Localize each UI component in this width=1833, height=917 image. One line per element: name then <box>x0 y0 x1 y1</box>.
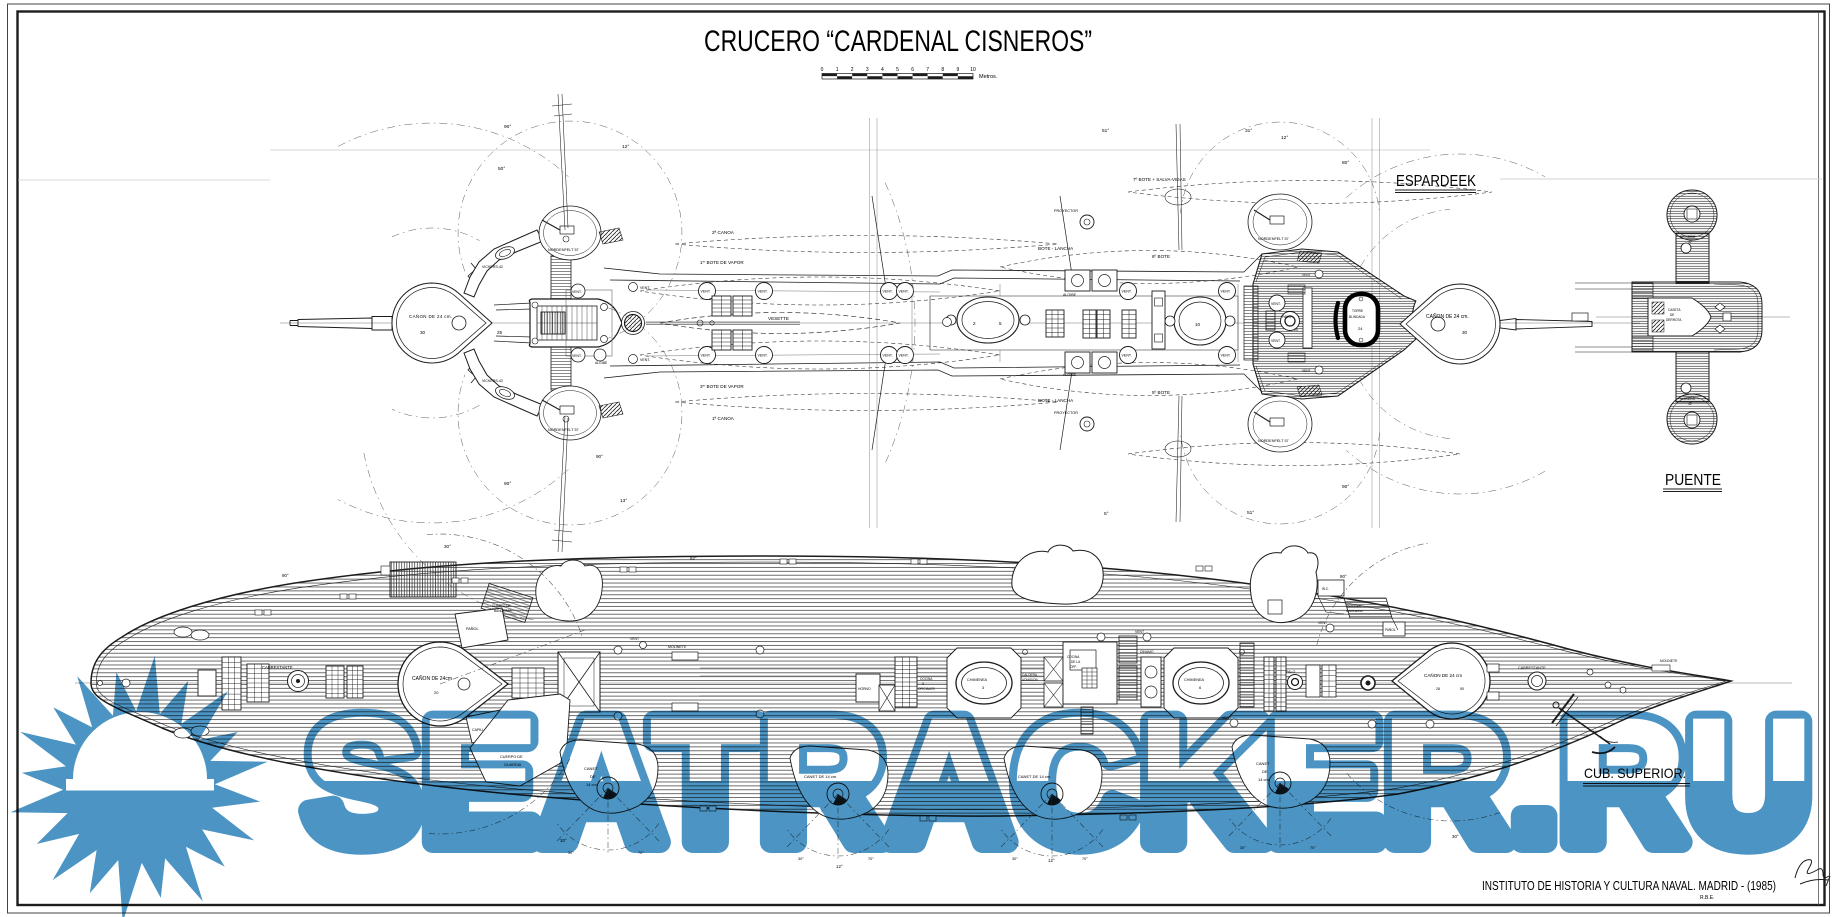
svg-text:90°: 90° <box>504 481 511 487</box>
svg-text:VICKERS-42: VICKERS-42 <box>482 379 503 383</box>
svg-text:VENT: VENT <box>1135 630 1144 634</box>
svg-text:DERROTA: DERROTA <box>1666 318 1682 322</box>
svg-text:10: 10 <box>1195 322 1201 327</box>
svg-text:20: 20 <box>1294 328 1298 332</box>
svg-text:90°: 90° <box>596 454 603 459</box>
svg-text:3: 3 <box>866 67 869 73</box>
svg-text:6º BOTE: 6º BOTE <box>1152 254 1170 259</box>
svg-text:NORDENFELT 57: NORDENFELT 57 <box>548 248 579 252</box>
svg-text:VENT: VENT <box>1302 273 1311 277</box>
svg-text:51°: 51° <box>1247 510 1254 516</box>
svg-text:7: 7 <box>926 67 929 73</box>
svg-text:VENT.: VENT. <box>1122 354 1132 358</box>
svg-text:12°: 12° <box>622 144 629 150</box>
svg-text:9: 9 <box>957 67 960 73</box>
svg-text:OFF.: OFF. <box>1070 665 1077 669</box>
svg-text:CUARTO DE: CUARTO DE <box>492 604 511 608</box>
svg-text:VENT.: VENT. <box>758 354 768 358</box>
svg-text:1ª CANOA: 1ª CANOA <box>712 416 735 421</box>
svg-text:90°: 90° <box>1342 484 1349 490</box>
svg-text:PROYECTOR: PROYECTOR <box>1054 209 1078 213</box>
svg-text:92°: 92° <box>690 556 697 561</box>
svg-text:VENT: VENT <box>630 637 639 641</box>
svg-text:MARINERIA: MARINERIA <box>1346 609 1363 613</box>
svg-text:13°: 13° <box>620 498 627 504</box>
svg-text:25: 25 <box>497 330 503 335</box>
svg-text:COCINA: COCINA <box>920 677 933 681</box>
svg-text:NORDENFELT 57: NORDENFELT 57 <box>548 428 579 432</box>
svg-text:90°: 90° <box>1340 574 1347 579</box>
svg-text:NORDENFELT 57: NORDENFELT 57 <box>1258 237 1289 241</box>
svg-text:80°: 80° <box>1342 160 1349 166</box>
svg-text:PAÑOL: PAÑOL <box>1385 627 1396 632</box>
svg-text:30: 30 <box>1462 330 1468 335</box>
svg-text:ESPARDEEK: ESPARDEEK <box>1396 173 1477 190</box>
svg-text:CAÑON DE 24 cm.: CAÑON DE 24 cm. <box>409 314 453 319</box>
svg-text:W.C.: W.C. <box>1322 587 1329 591</box>
svg-text:BOTE - LANCHA: BOTE - LANCHA <box>1038 398 1074 403</box>
svg-text:PALO: PALO <box>1286 670 1296 674</box>
svg-text:VENT.: VENT. <box>883 354 893 358</box>
svg-text:1: 1 <box>836 67 839 73</box>
svg-text:50°: 50° <box>498 166 505 172</box>
svg-text:VENT.: VENT. <box>899 354 909 358</box>
svg-text:CABRESTANTE: CABRESTANTE <box>1518 666 1546 670</box>
svg-text:VENT.: VENT. <box>883 290 893 294</box>
svg-text:INSTITUTO DE HISTORIA Y CU: INSTITUTO DE HISTORIA Y CULTURA NAVAL. M… <box>1482 879 1776 893</box>
svg-text:DE: DE <box>1670 313 1674 317</box>
svg-text:5°: 5° <box>1104 511 1109 517</box>
svg-text:30°: 30° <box>444 544 451 549</box>
svg-text:CALDERA: CALDERA <box>1022 673 1038 677</box>
svg-text:VENT.: VENT. <box>1122 290 1132 294</box>
svg-text:3er BOTE DE VAPOR: 3er BOTE DE VAPOR <box>700 384 744 390</box>
svg-text:VENT.: VENT. <box>701 354 711 358</box>
svg-text:CRUCERO “CARDENAL CISNEROS”: CRUCERO “CARDENAL CISNEROS” <box>704 25 1092 58</box>
svg-text:VENT.: VENT. <box>572 354 582 358</box>
svg-text:MOLINETE: MOLINETE <box>668 645 687 649</box>
svg-text:ADMISION: ADMISION <box>1022 678 1038 682</box>
svg-text:PAÑOL: PAÑOL <box>466 626 479 631</box>
svg-text:24: 24 <box>1358 326 1363 331</box>
svg-text:VICKERS-42: VICKERS-42 <box>482 265 503 269</box>
svg-text:ALGIBE: ALGIBE <box>1063 293 1077 297</box>
svg-text:2ª CANOA: 2ª CANOA <box>712 230 735 235</box>
svg-text:VENT: VENT <box>1318 621 1327 625</box>
svg-text:CABRESTANTE: CABRESTANTE <box>262 665 293 670</box>
svg-text:5: 5 <box>999 321 1002 326</box>
svg-text:CAÑON DE 24 cm.: CAÑON DE 24 cm. <box>1426 313 1469 320</box>
svg-text:90°: 90° <box>504 124 511 130</box>
svg-text:31°: 31° <box>1245 128 1252 134</box>
svg-text:VENT.: VENT. <box>1271 339 1281 343</box>
svg-text:12°: 12° <box>1281 135 1288 141</box>
svg-text:PALO: PALO <box>1282 315 1292 319</box>
svg-text:BOTE - LANCHA: BOTE - LANCHA <box>1038 246 1074 251</box>
svg-text:1er BOTE DE VAPOR: 1er BOTE DE VAPOR <box>700 260 744 266</box>
svg-text:CHIMENEA: CHIMENEA <box>967 678 988 682</box>
svg-text:ALGIBE: ALGIBE <box>595 361 608 365</box>
svg-text:8: 8 <box>941 67 944 73</box>
svg-text:CAÑON DE 24cm: CAÑON DE 24cm <box>412 675 452 682</box>
svg-text:COCINA: COCINA <box>1067 655 1080 659</box>
svg-text:VICKERS: VICKERS <box>1680 235 1696 239</box>
svg-text:R.B.E.: R.B.E. <box>1700 895 1714 901</box>
svg-text:CASETA: CASETA <box>1668 308 1681 312</box>
svg-text:PUENTE: PUENTE <box>1665 472 1721 489</box>
svg-text:42: 42 <box>1688 402 1692 406</box>
svg-text:5: 5 <box>896 67 899 73</box>
svg-text:VENT: VENT <box>1302 369 1311 373</box>
svg-text:VENT.: VENT. <box>701 290 711 294</box>
svg-text:VENT.: VENT. <box>1221 354 1231 358</box>
svg-text:VENT.: VENT. <box>572 290 582 294</box>
svg-text:VENT.: VENT. <box>1221 290 1231 294</box>
svg-text:MOLINETE: MOLINETE <box>1660 659 1678 663</box>
svg-text:BANDERAS: BANDERAS <box>494 609 512 613</box>
svg-text:51°: 51° <box>1102 128 1109 134</box>
svg-text:CHIMENEA: CHIMENEA <box>1184 678 1205 682</box>
svg-text:7º BOTE + SALVA-VIDAS: 7º BOTE + SALVA-VIDAS <box>1133 177 1186 182</box>
svg-text:VENT.: VENT. <box>640 358 650 362</box>
svg-text:DE LA: DE LA <box>1071 660 1081 664</box>
svg-text:5º BOTE: 5º BOTE <box>1152 390 1170 395</box>
svg-text:VICKERS: VICKERS <box>1680 397 1696 401</box>
svg-text:BLINDADA: BLINDADA <box>1349 315 1366 319</box>
svg-text:Metros.: Metros. <box>979 74 998 80</box>
svg-text:30: 30 <box>420 330 426 335</box>
svg-text:2: 2 <box>851 67 854 73</box>
svg-text:90°: 90° <box>282 573 289 578</box>
svg-text:VESETTE: VESETTE <box>768 316 789 321</box>
svg-text:VENT.: VENT. <box>899 290 909 294</box>
svg-text:VENT.: VENT. <box>1271 302 1281 306</box>
svg-text:CAÑON DE 24 cm: CAÑON DE 24 cm <box>1424 672 1462 678</box>
svg-text:NORDENFELT 57: NORDENFELT 57 <box>1258 439 1289 443</box>
svg-text:VENT.: VENT. <box>758 290 768 294</box>
svg-text:10: 10 <box>970 67 976 73</box>
svg-text:DINAMO: DINAMO <box>1140 650 1154 654</box>
svg-text:JARDINES: JARDINES <box>1346 604 1361 608</box>
svg-text:PROYECTOR: PROYECTOR <box>1054 411 1078 415</box>
svg-text:0: 0 <box>821 67 824 73</box>
svg-text:2: 2 <box>973 321 976 326</box>
svg-text:4: 4 <box>881 67 884 73</box>
svg-text:TORRE: TORRE <box>1352 309 1363 313</box>
svg-text:6: 6 <box>911 67 914 73</box>
svg-text:ALGIBE: ALGIBE <box>1063 373 1077 377</box>
